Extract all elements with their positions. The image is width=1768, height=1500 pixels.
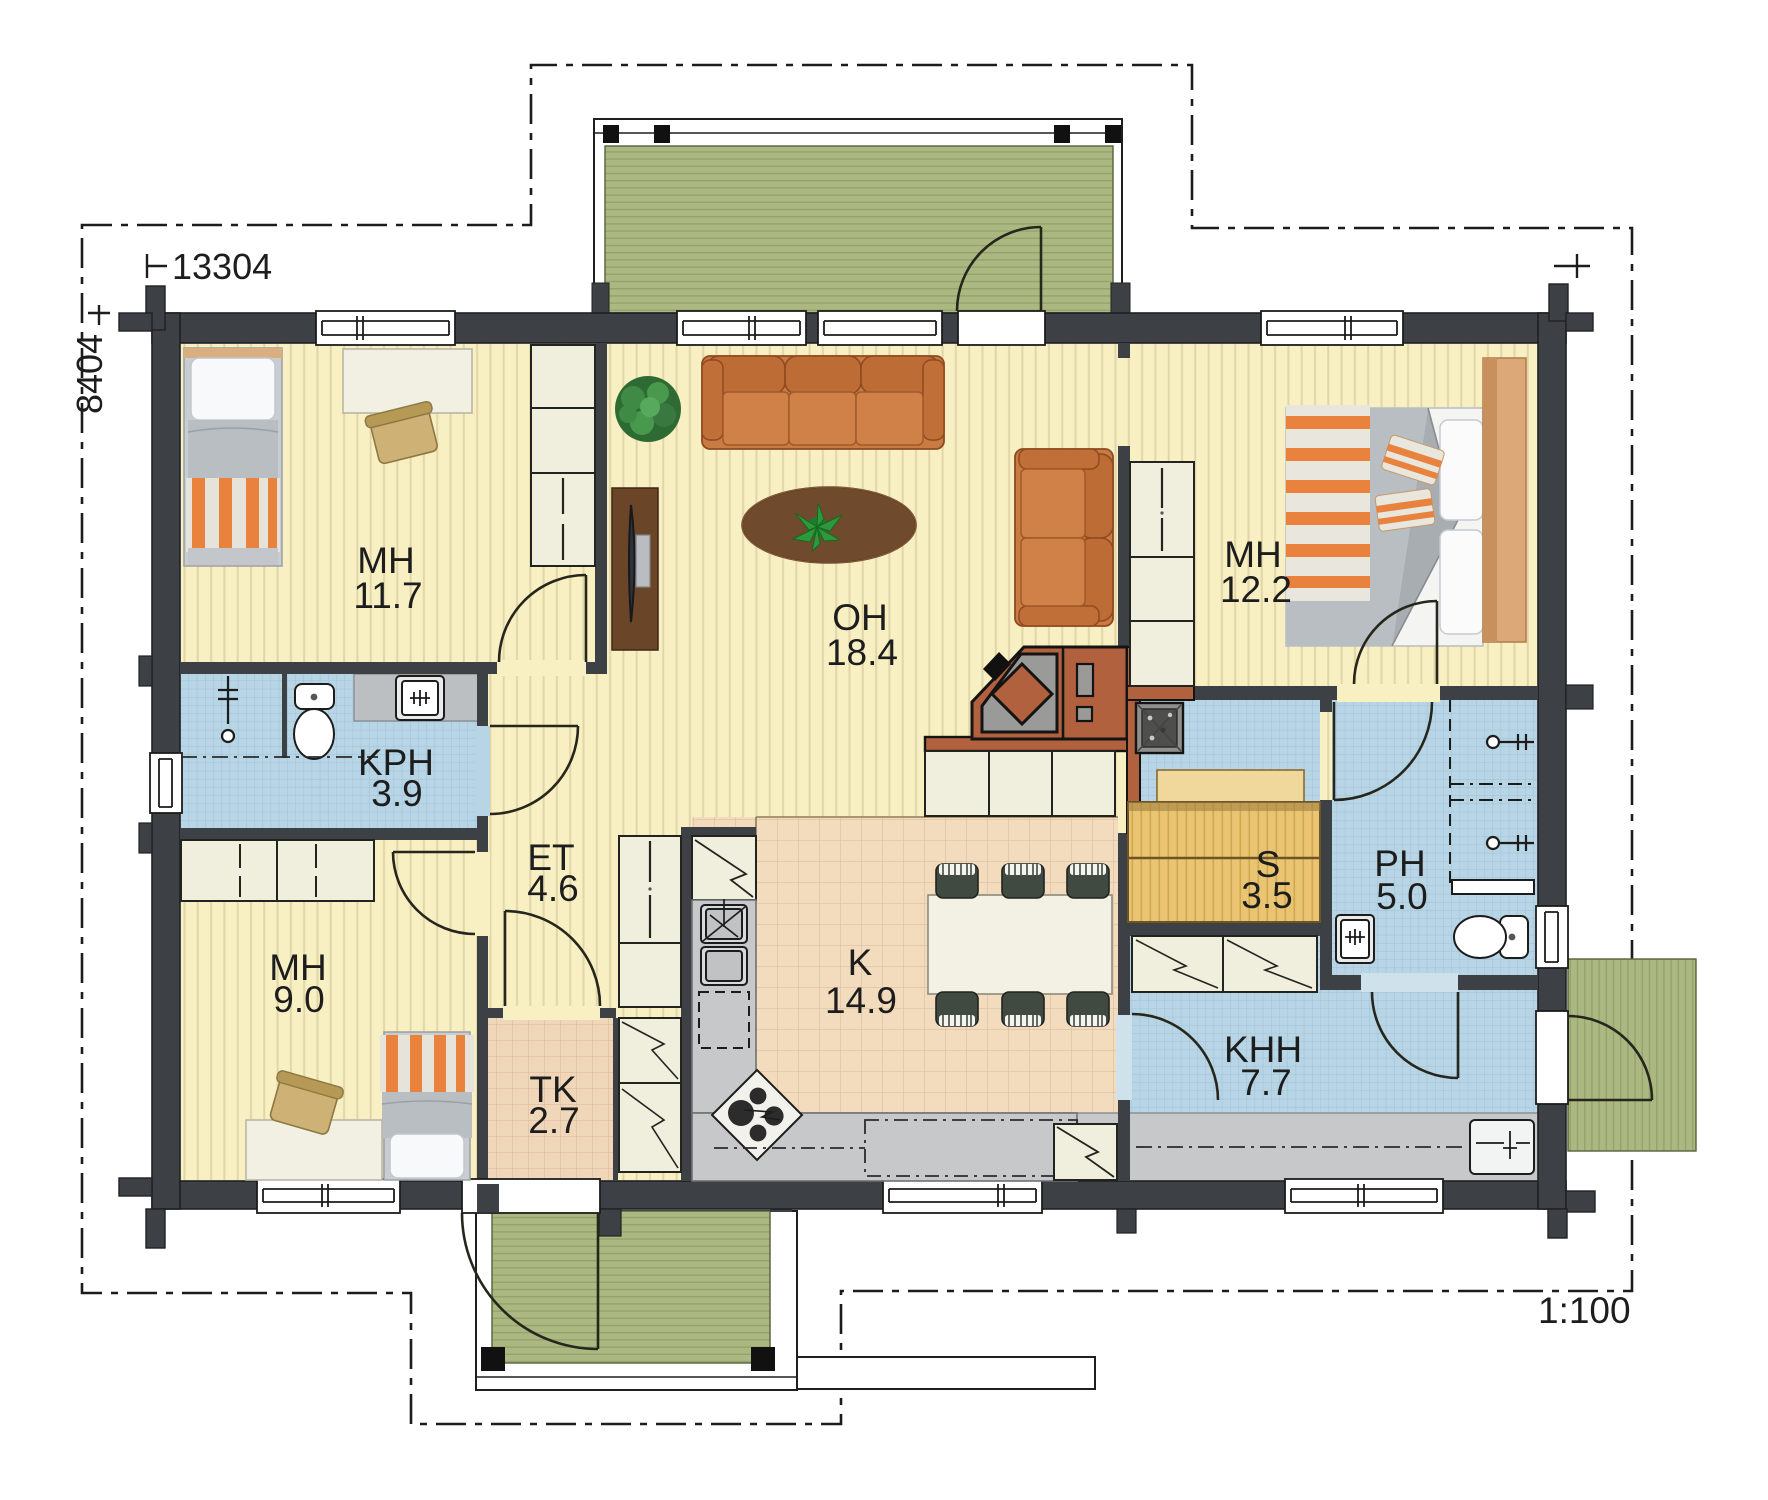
svg-text:12.2: 12.2	[1220, 569, 1292, 610]
svg-text:K: K	[848, 942, 873, 983]
svg-text:14.9: 14.9	[825, 980, 897, 1021]
svg-text:8404: 8404	[69, 334, 110, 414]
svg-text:18.4: 18.4	[826, 632, 898, 673]
svg-text:3.9: 3.9	[371, 773, 422, 814]
svg-text:13304: 13304	[172, 246, 272, 287]
svg-text:7.7: 7.7	[1240, 1062, 1291, 1103]
svg-text:1:100: 1:100	[1538, 1290, 1631, 1331]
svg-text:3.5: 3.5	[1241, 875, 1292, 916]
svg-text:2.7: 2.7	[528, 1100, 579, 1141]
svg-text:9.0: 9.0	[273, 979, 324, 1020]
svg-text:11.7: 11.7	[353, 575, 422, 616]
svg-text:4.6: 4.6	[527, 868, 578, 909]
svg-text:5.0: 5.0	[1376, 876, 1427, 917]
